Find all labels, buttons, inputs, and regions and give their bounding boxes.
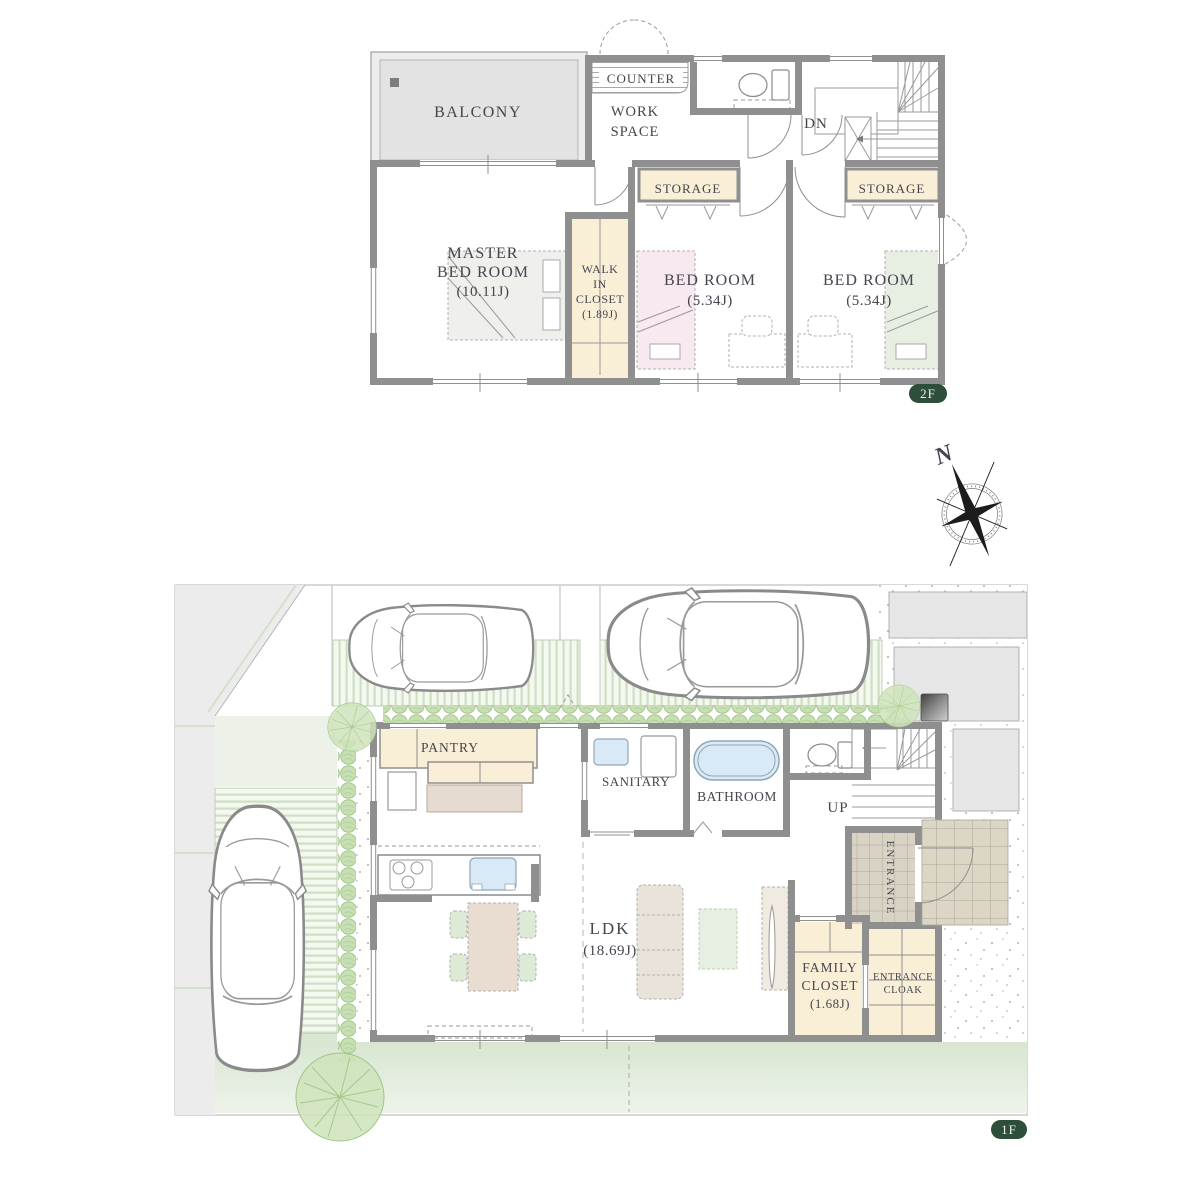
- hedge-row-left: [338, 740, 356, 1062]
- tree-top-right: [878, 685, 920, 727]
- entrance-porch: [922, 820, 1008, 925]
- bedroom1-label-1: BED ROOM: [664, 272, 756, 289]
- bedroom2-label-2: (5.34J): [846, 293, 892, 309]
- balcony-drain-icon: [390, 78, 399, 87]
- entrance-label: ENTRANCE: [884, 841, 896, 916]
- family-closet-label-2: CLOSET: [801, 978, 858, 993]
- car-3: [209, 806, 306, 1070]
- water-heater-unit: [921, 694, 948, 721]
- ldk-label-2: (18.69J): [583, 943, 637, 959]
- bedroom1-bed: [637, 251, 695, 369]
- bedroom2-label-1: BED ROOM: [823, 272, 915, 289]
- sanitary-label: SANITARY: [602, 774, 670, 789]
- ldk-label-1: LDK: [590, 919, 631, 938]
- family-closet-label-3: (1.68J): [810, 996, 850, 1011]
- tree-bottom: [296, 1053, 384, 1141]
- floor-1f-plan: PANTRY SANITARY BATHROOM UP ENTRANCE LDK…: [175, 585, 1027, 1141]
- pantry-label: PANTRY: [421, 740, 479, 755]
- storage-left-label: STORAGE: [655, 181, 722, 196]
- gravel-strip-left: [354, 735, 370, 1035]
- floor-plan-canvas: BALCONY COUNTER WORK SPACE DN STORAGE ST…: [0, 0, 1200, 1200]
- master-label-1: MASTER: [448, 245, 519, 262]
- bathtub: [694, 741, 779, 780]
- entrance-floor: [852, 832, 915, 924]
- dn-label: DN: [804, 116, 828, 132]
- wic-label-2: IN: [593, 277, 607, 291]
- compass-north-label: N: [930, 439, 958, 471]
- bathroom-label: BATHROOM: [697, 789, 777, 804]
- floor-1f-badge: 1F: [991, 1120, 1027, 1139]
- balcony-label: BALCONY: [434, 104, 522, 121]
- entrance-cloak-label-1: ENTRANCE: [873, 972, 933, 983]
- family-closet-label-1: FAMILY: [802, 960, 857, 975]
- up-label: UP: [827, 800, 848, 816]
- counter-label: COUNTER: [607, 71, 675, 86]
- hedge-row-top: [383, 705, 905, 723]
- entrance-cloak-label-2: CLOAK: [884, 985, 923, 996]
- svg-text:2F: 2F: [920, 386, 936, 401]
- svg-text:1F: 1F: [1001, 1122, 1017, 1137]
- wic-label-3: CLOSET: [576, 292, 625, 306]
- bedroom2-bed: [885, 251, 941, 369]
- master-label-2: BED ROOM: [437, 264, 529, 281]
- storage-right-label: STORAGE: [859, 181, 926, 196]
- master-label-3: (10.11J): [456, 284, 509, 300]
- dashed-door-swing: [600, 20, 668, 54]
- workspace-label-1: WORK: [611, 104, 659, 120]
- compass: N: [906, 427, 1027, 572]
- car-2: [608, 588, 868, 701]
- workspace-label-2: SPACE: [611, 124, 660, 140]
- car-1: [349, 603, 533, 693]
- floor-plan-sheet: BALCONY COUNTER WORK SPACE DN STORAGE ST…: [0, 0, 1200, 1200]
- wic-label-4: (1.89J): [582, 309, 618, 321]
- tree-top-left: [328, 703, 376, 751]
- floor-2f-badge: 2F: [909, 384, 947, 403]
- bedroom1-label-2: (5.34J): [687, 293, 733, 309]
- side-yard: [215, 716, 337, 788]
- wic-label-1: WALK: [582, 262, 619, 276]
- floor-2f-plan: BALCONY COUNTER WORK SPACE DN STORAGE ST…: [370, 20, 967, 403]
